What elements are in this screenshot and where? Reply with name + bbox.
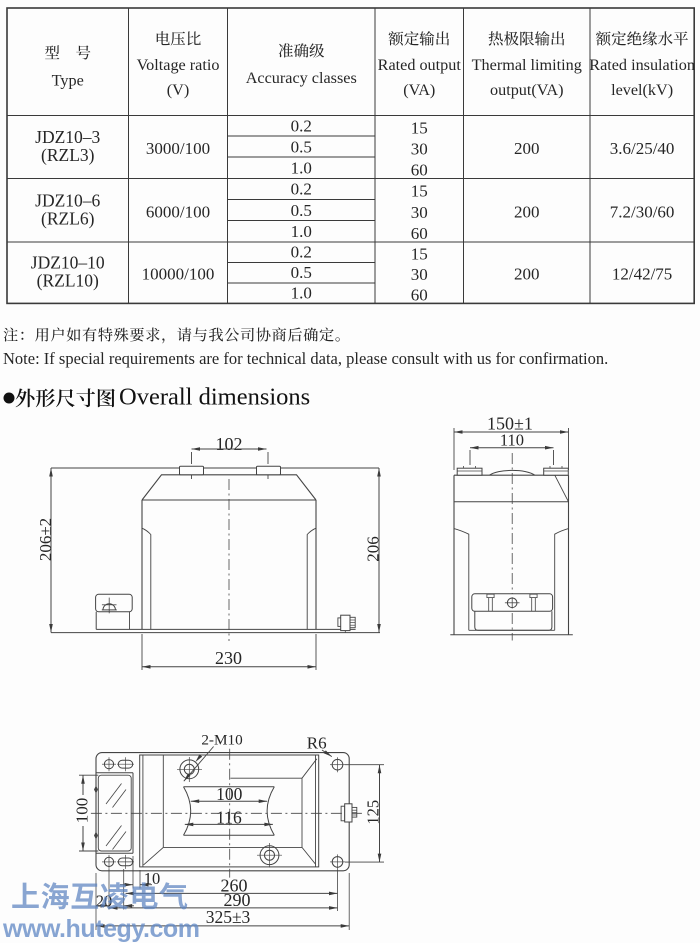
svg-text:0.2: 0.2 [291,180,312,199]
svg-text:60: 60 [411,224,428,243]
svg-text:15: 15 [411,245,428,264]
svg-text:200: 200 [514,202,540,221]
svg-text:7.2/30/60: 7.2/30/60 [610,202,675,221]
svg-text:Rated insulation: Rated insulation [589,56,695,74]
svg-text:(RZL10): (RZL10) [37,271,99,291]
svg-text:Overall dimensions: Overall dimensions [119,384,310,411]
svg-text:0.5: 0.5 [291,138,312,157]
svg-text:(RZL6): (RZL6) [41,208,95,228]
svg-text:2-M10: 2-M10 [201,732,243,749]
svg-text:0.2: 0.2 [291,243,312,262]
svg-text:30: 30 [411,203,428,222]
svg-text:Voltage ratio: Voltage ratio [137,56,220,74]
svg-text:1.0: 1.0 [291,159,312,178]
svg-text:JDZ10–10: JDZ10–10 [31,253,105,273]
svg-text:12/42/75: 12/42/75 [612,265,672,284]
svg-text:100: 100 [72,798,91,824]
svg-text:JDZ10–3: JDZ10–3 [35,127,100,147]
svg-text:102: 102 [216,434,243,454]
svg-text:(RZL3): (RZL3) [41,145,95,165]
svg-text:Rated output: Rated output [378,56,462,74]
svg-text:www.hutegy.com: www.hutegy.com [2,915,200,943]
svg-text:60: 60 [411,286,428,305]
svg-text:0.5: 0.5 [291,201,312,220]
svg-text:30: 30 [411,140,428,159]
svg-text:R6: R6 [307,734,327,753]
svg-text:1.0: 1.0 [291,284,312,303]
svg-text:6000/100: 6000/100 [146,202,210,221]
svg-text:(V): (V) [167,81,189,99]
svg-text:Thermal limiting: Thermal limiting [472,56,582,74]
svg-text:Accuracy classes: Accuracy classes [246,69,357,87]
svg-text:10: 10 [144,869,161,888]
svg-text:JDZ10–6: JDZ10–6 [35,190,100,210]
svg-text:15: 15 [411,119,428,138]
svg-text:206: 206 [363,536,382,562]
svg-text:(VA): (VA) [403,81,435,99]
svg-text:110: 110 [500,431,524,450]
svg-text:15: 15 [411,182,428,201]
svg-text:1.0: 1.0 [291,222,312,241]
svg-text:30: 30 [411,265,428,284]
svg-text:10000/100: 10000/100 [142,265,215,284]
svg-text:0.2: 0.2 [291,117,312,136]
svg-text:125: 125 [364,800,383,825]
svg-text:206±2: 206±2 [36,518,55,561]
svg-text:3.6/25/40: 3.6/25/40 [610,139,675,158]
svg-text:Type: Type [52,72,84,90]
svg-text:0.5: 0.5 [291,263,312,282]
svg-text:3000/100: 3000/100 [146,139,210,158]
svg-text:level(kV): level(kV) [611,81,673,99]
svg-text:Note: If special requirements: Note: If special requirements are for te… [3,349,608,368]
svg-text:325±3: 325±3 [206,907,251,927]
svg-text:230: 230 [215,648,242,668]
svg-text:200: 200 [514,139,540,158]
svg-text:200: 200 [514,265,540,284]
svg-text:60: 60 [411,161,428,180]
svg-text:output(VA): output(VA) [490,81,563,99]
